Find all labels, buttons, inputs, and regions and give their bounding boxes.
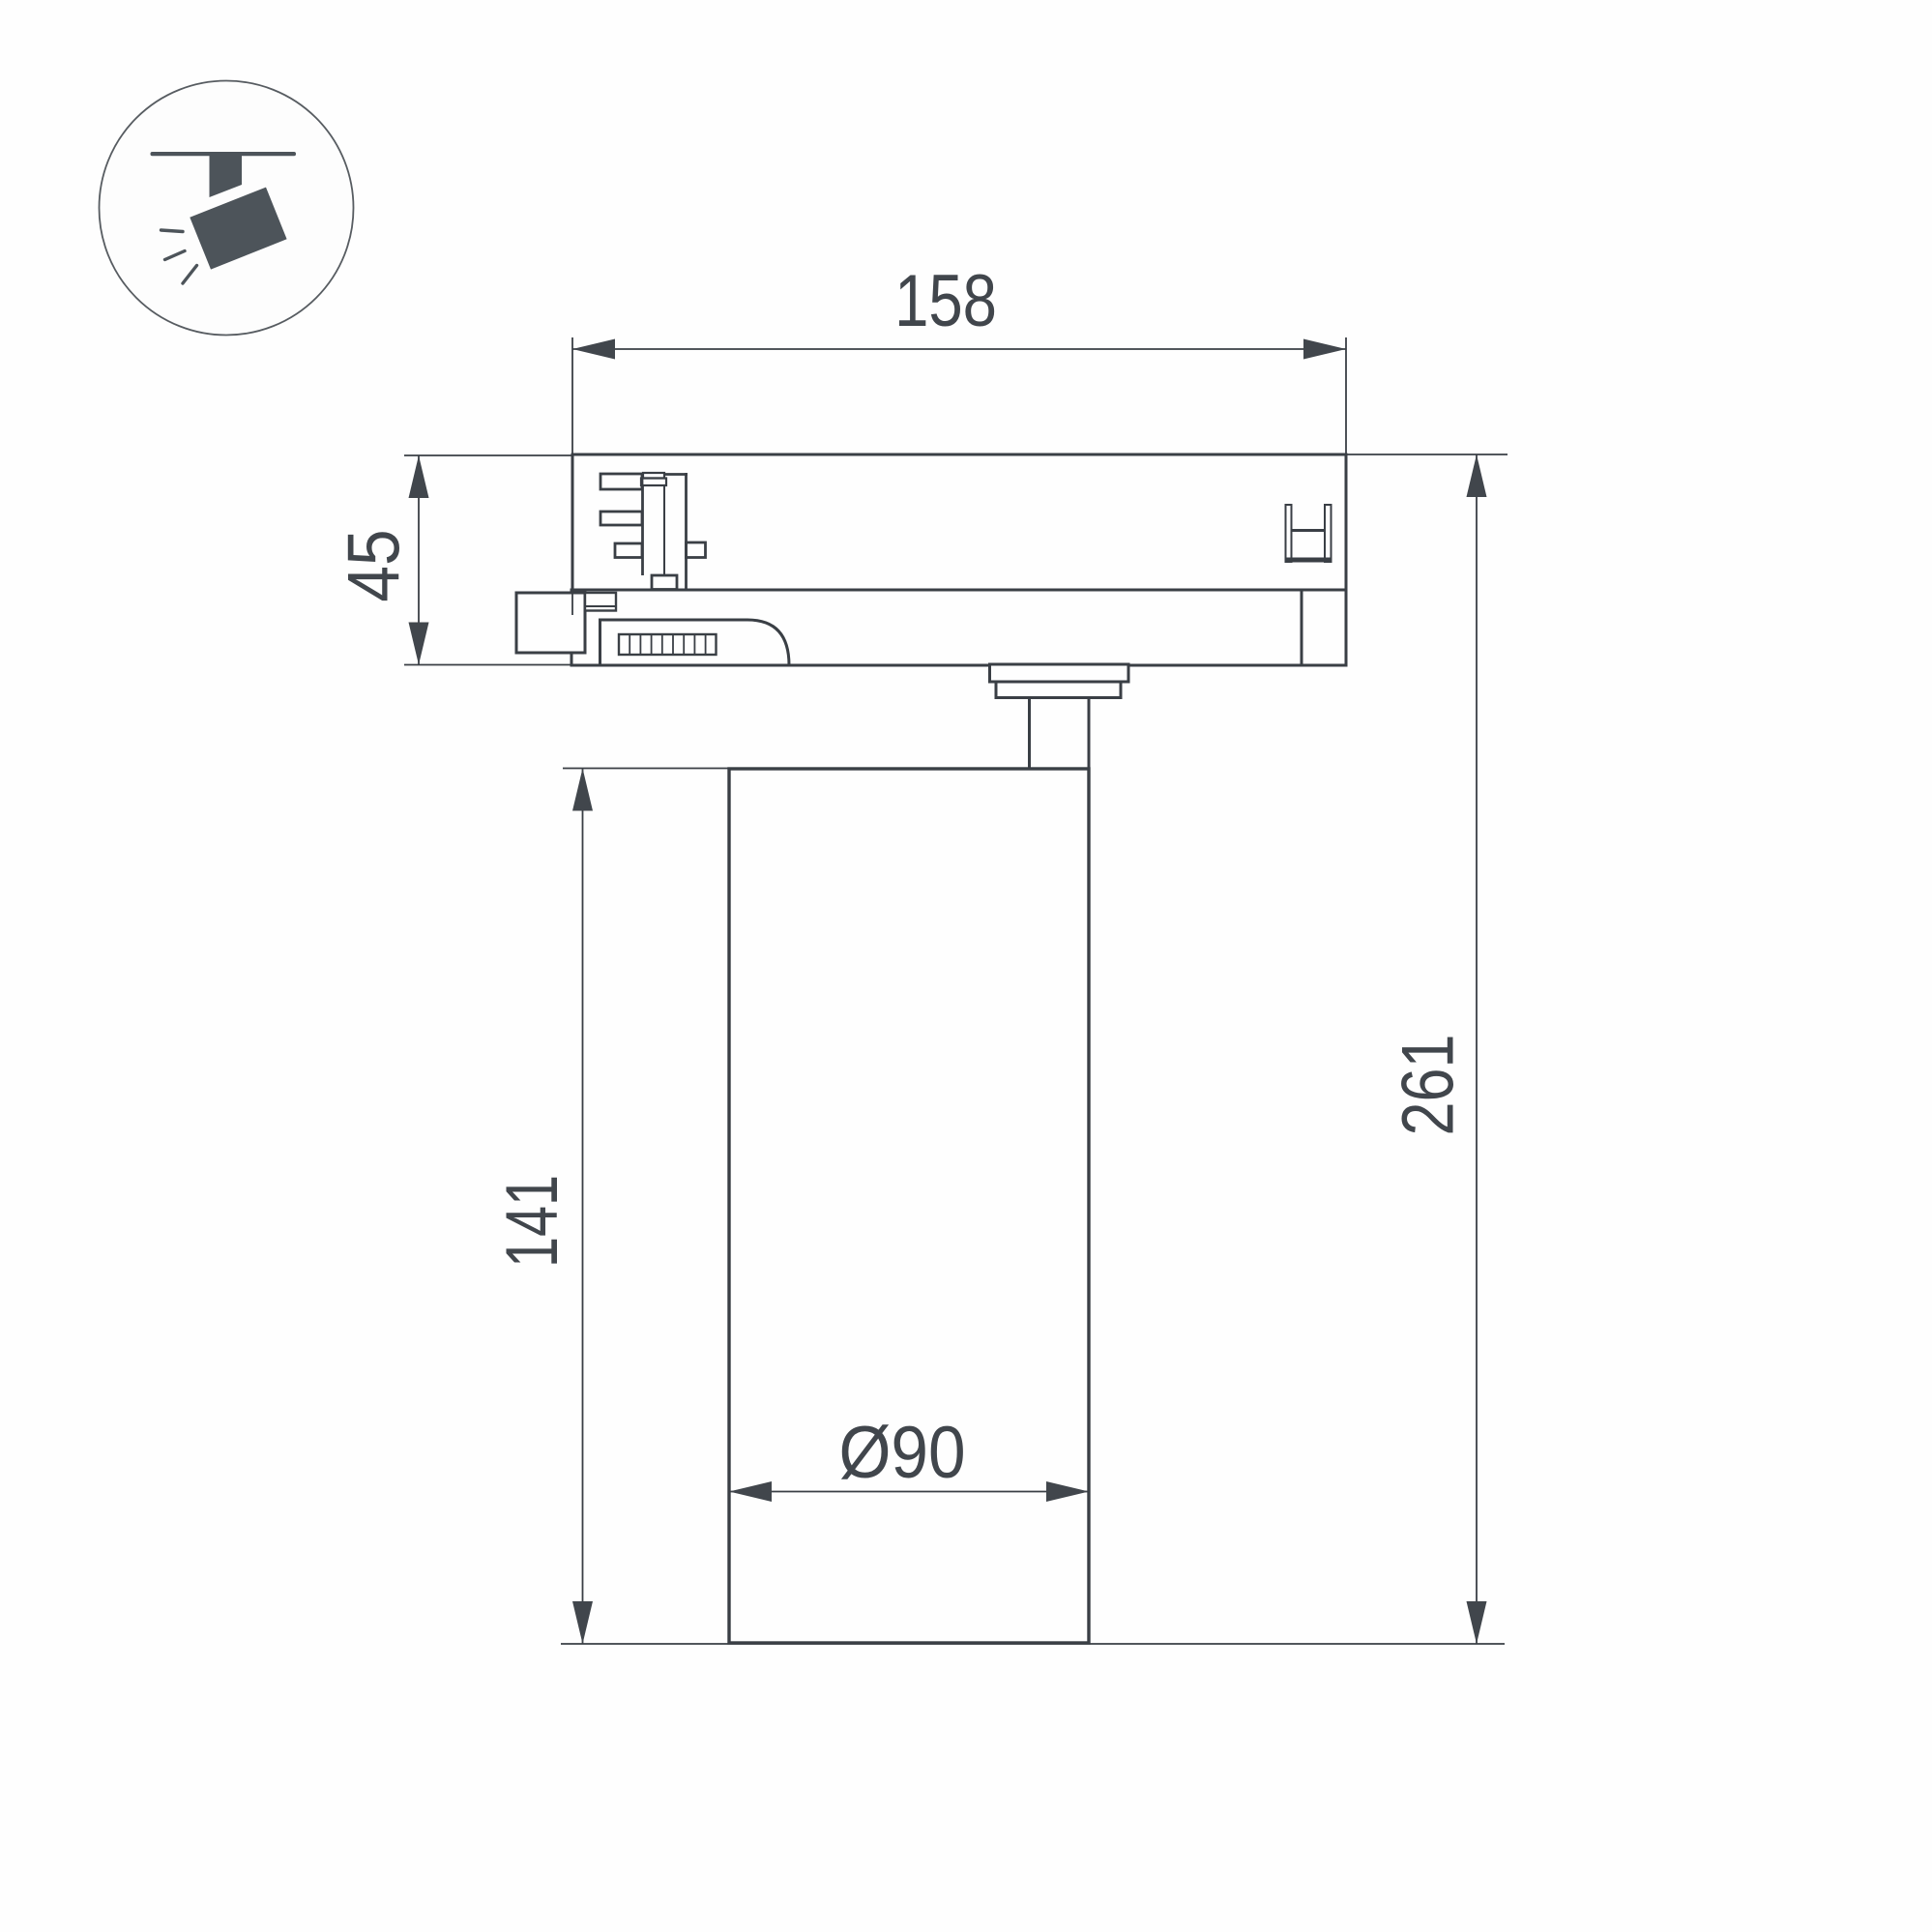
svg-text:158: 158 (894, 260, 997, 342)
svg-text:261: 261 (1387, 1034, 1469, 1135)
svg-text:141: 141 (491, 1175, 573, 1268)
svg-text:Ø90: Ø90 (838, 1412, 965, 1494)
svg-text:45: 45 (334, 529, 416, 601)
